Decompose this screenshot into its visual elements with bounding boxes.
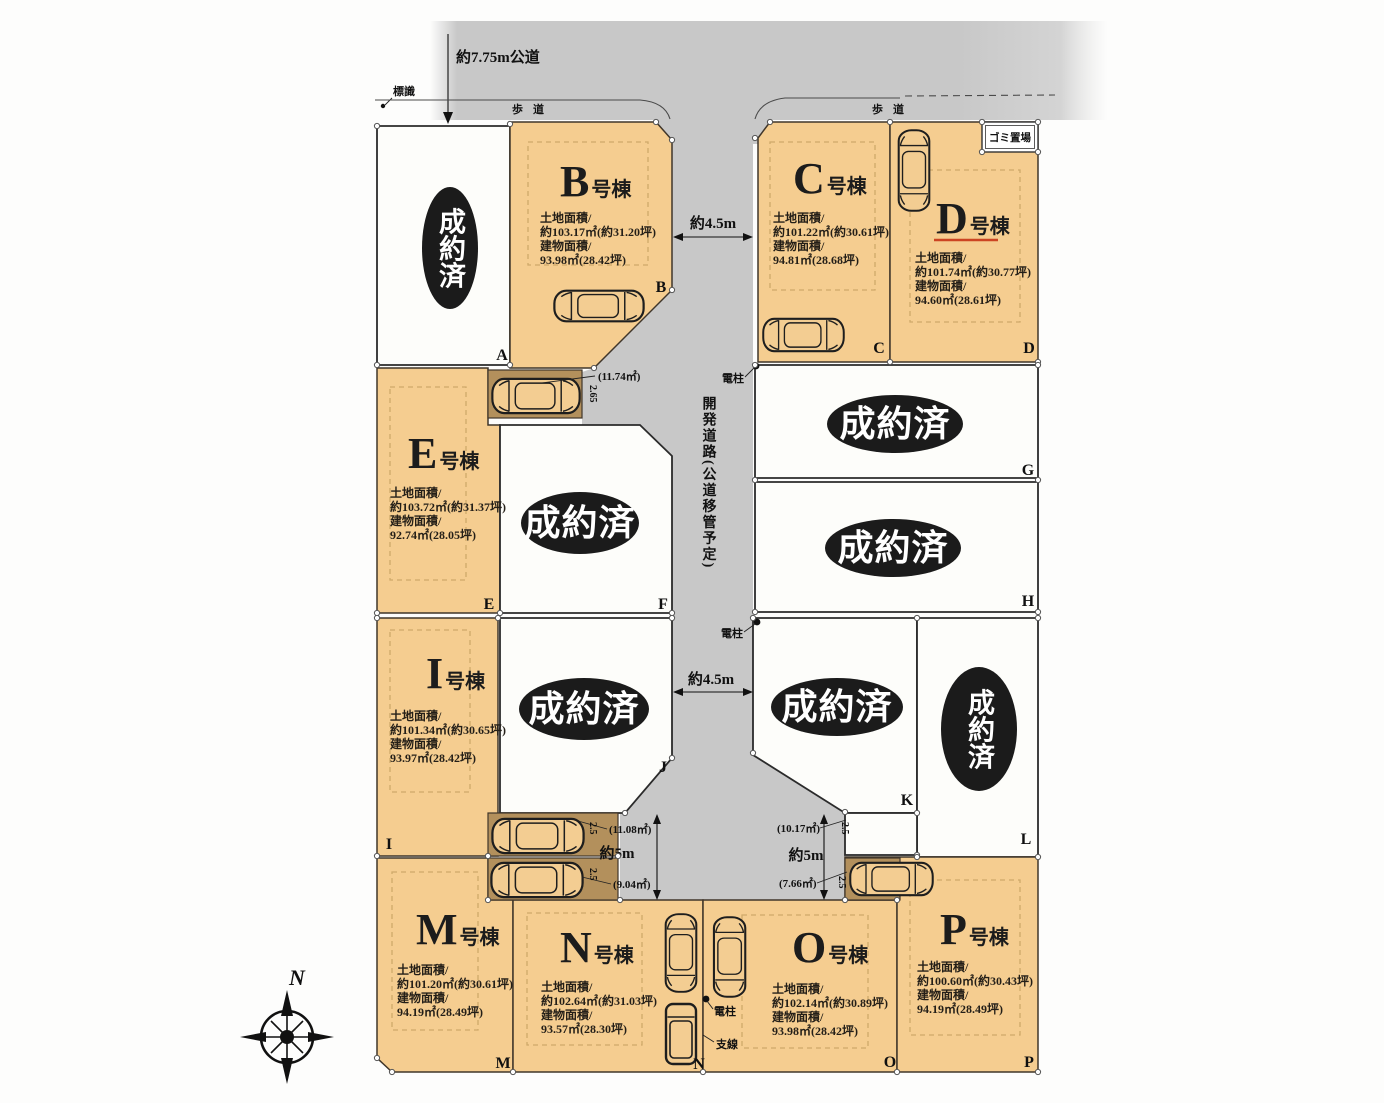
road-width-top: 約4.5m [690, 214, 737, 232]
parking-area-i: (11.08㎡) [609, 822, 652, 836]
sold-badge-L: 成約済 [941, 667, 1017, 791]
parking-dim-m: 2.5 [587, 868, 598, 881]
pole-label-2: 電柱 [721, 626, 743, 640]
sold-badge-J: 成約済 [519, 678, 649, 740]
compass-needle-n [281, 990, 293, 1016]
compass-needle-s [281, 1058, 293, 1084]
sign-dot [381, 104, 385, 108]
corner-H: H [1022, 593, 1035, 610]
corner-A: A [496, 347, 508, 364]
compass-needle-e [308, 1032, 334, 1042]
sign-label: 標識 [393, 84, 415, 98]
car-parking-b [492, 379, 579, 413]
sign-leader [385, 98, 392, 105]
corner-D: D [1023, 340, 1035, 357]
van-lot-n [666, 1004, 696, 1064]
sold-badge-A: 成約済 [422, 187, 478, 309]
parking-area-m: (9.04㎡) [613, 877, 651, 891]
sold-badge-A-text: 成約済 [435, 207, 466, 288]
car-parking-m [491, 863, 582, 897]
parking-area-b: (11.74㎡) [598, 369, 641, 383]
parking-area-k: (10.17㎡) [777, 821, 820, 835]
corner-E: E [484, 596, 495, 613]
sold-badge-K: 成約済 [771, 678, 903, 736]
parking-dim-k: 2.5 [839, 822, 850, 835]
corner-P: P [1024, 1054, 1034, 1071]
corner-L: L [1021, 831, 1032, 848]
dev-road-label: 開発道路(公道移管予定) [701, 396, 718, 569]
parking-dim-b: 2.65 [587, 385, 598, 403]
pole-dot-3 [703, 996, 710, 1003]
compass-hub [280, 1030, 294, 1044]
sold-badge-H: 成約済 [825, 519, 961, 577]
lot-K-parking-area [845, 813, 917, 855]
parking-dim-i: 2.5 [587, 822, 598, 835]
car-parking-p [850, 863, 932, 895]
sold-badge-G: 成約済 [827, 395, 963, 453]
corner-G: G [1022, 462, 1035, 479]
car-parking-i [492, 819, 583, 853]
sold-badge-F-text: 成約済 [524, 503, 635, 543]
sold-badge-K-text: 成約済 [781, 687, 892, 727]
parking-area-p: (7.66㎡) [779, 876, 817, 890]
corner-F: F [658, 596, 668, 613]
car-lot-d [899, 130, 930, 211]
car-lot-c [763, 319, 844, 351]
road-width-mid: 約4.5m [688, 670, 735, 688]
compass: N [240, 965, 334, 1084]
pole-label-3: 電柱 [714, 1004, 736, 1018]
wire-label: 支線 [715, 1037, 738, 1051]
garbage-label: ゴミ置場 [989, 131, 1031, 144]
sold-badge-J-text: 成約済 [528, 689, 639, 729]
site-plan: 成約済 成約済 成約済 成約済 成約済 成約済 成約済 B号棟 C号棟 [0, 0, 1384, 1103]
sidewalk-label-right: 歩道 [872, 102, 914, 116]
compass-needle-w [240, 1032, 266, 1042]
car-lot-n [666, 914, 697, 992]
car-lot-o [714, 917, 745, 997]
corner-J: J [659, 759, 667, 776]
compass-north-label: N [288, 965, 306, 990]
corner-M: M [495, 1055, 510, 1072]
car-lot-b [554, 291, 643, 322]
parking-dim-p: 2.5 [836, 876, 847, 889]
road-width-label: 約7.75m公道 [456, 48, 540, 66]
corner-O: O [884, 1054, 896, 1071]
sold-badge-F: 成約済 [521, 492, 639, 554]
road-width-right: 約5m [789, 846, 825, 864]
sold-badge-G-text: 成約済 [839, 404, 950, 444]
sold-badge-H-text: 成約済 [837, 528, 948, 568]
corner-C: C [873, 340, 885, 357]
corner-I: I [386, 836, 392, 853]
corner-K: K [901, 792, 914, 809]
sold-badge-L-text: 成約済 [964, 688, 995, 769]
pole-label-1: 電柱 [722, 371, 744, 385]
corner-B: B [656, 279, 667, 296]
sidewalk-label-left: 歩道 [512, 102, 554, 116]
